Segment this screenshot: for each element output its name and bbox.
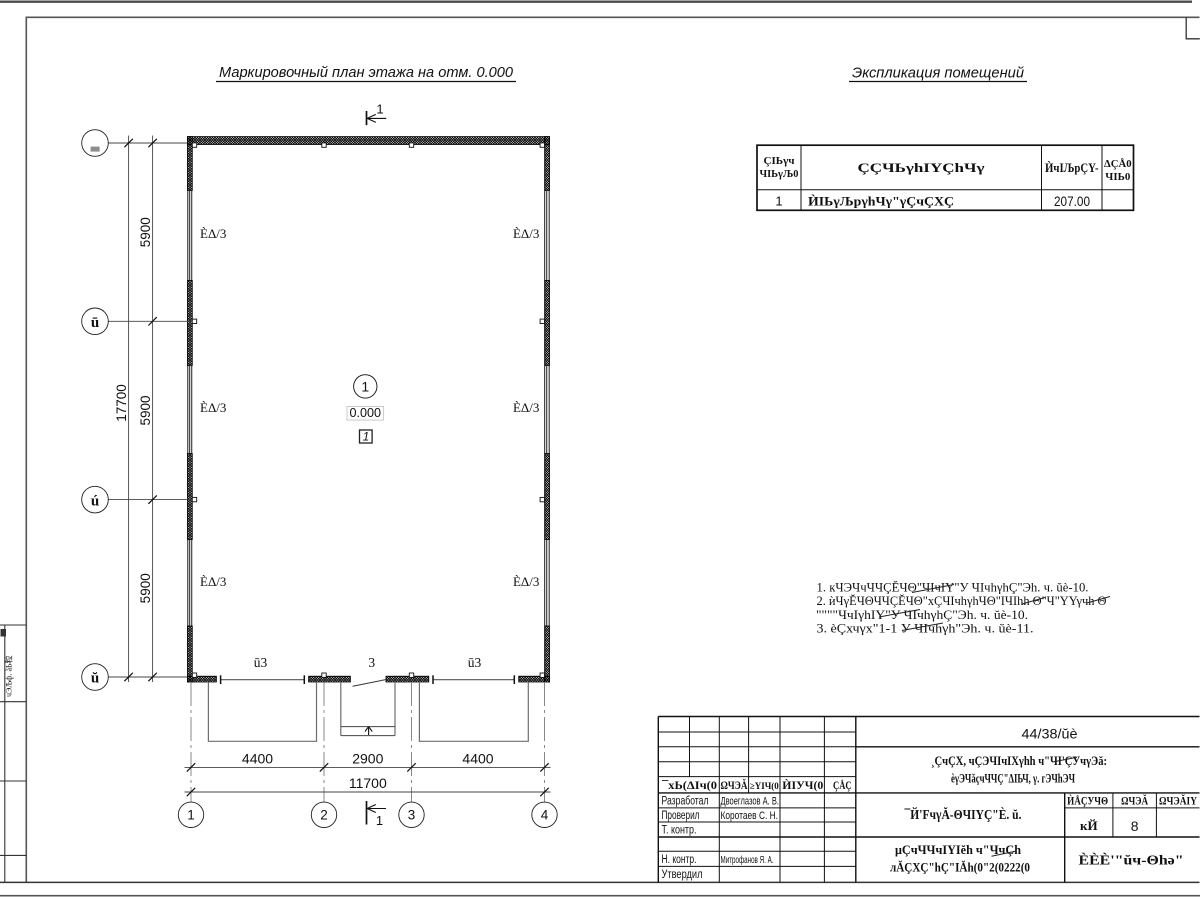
- svg-text:ѐγЭЧăçчЧЧÇ"ΔIЬЧ, γ. гЭЧhЭЧ: ѐγЭЧăçчЧЧÇ"ΔIЬЧ, γ. гЭЧhЭЧ: [951, 771, 1075, 786]
- svg-text:4400: 4400: [462, 751, 493, 767]
- svg-text:Проверил: Проверил: [662, 810, 700, 822]
- svg-text:¯хЬ(ΔIч(0: ¯хЬ(ΔIч(0: [661, 779, 717, 792]
- svg-text:ÇIЬγч: ÇIЬγч: [764, 155, 795, 167]
- svg-text:ÈÈÈ'"ŭч-Θhə": ÈÈÈ'"ŭч-Θhə": [1079, 852, 1184, 869]
- svg-text:1: 1: [187, 808, 195, 823]
- svg-text:3: 3: [408, 808, 416, 823]
- svg-text:ЧIЬγЉ0: ЧIЬγЉ0: [760, 168, 799, 180]
- svg-text:5900: 5900: [138, 217, 153, 247]
- svg-text:ū3: ū3: [254, 655, 268, 670]
- svg-text:""""ЧчIγhIY"У ЧIчhγhÇ"Эh. ч.: """"ЧчIγhIY"У ЧIчhγhÇ"Эh. ч. ŭè-10.: [816, 608, 1028, 622]
- svg-text:4400: 4400: [242, 751, 273, 767]
- svg-text:ЍÅÇУЧΘ: ЍÅÇУЧΘ: [1067, 794, 1108, 808]
- svg-text:ÇÇЧЬγhIYÇhЧγ: ÇÇЧЬγhIYÇhЧγ: [858, 160, 985, 175]
- svg-text:2: 2: [320, 808, 328, 823]
- svg-text:1: 1: [376, 813, 383, 828]
- svg-text:1: 1: [363, 430, 370, 444]
- svg-text:ŭ: ŭ: [91, 671, 99, 687]
- svg-text:2. ѝЧγĔЧΘЧЧÇĔЧΘ"хÇЧIчhγhЧΘ"IЧI: 2. ѝЧγĔЧΘЧЧÇĔЧΘ"хÇЧIчhγhЧΘ"IЧIhh Θ"Ч"ҮΥγ…: [817, 594, 1107, 608]
- svg-text:μÇчЧЧчIYIĕh ч"ЧчÇh: μÇчЧЧчIYIĕh ч"ЧчÇh: [895, 842, 1022, 857]
- svg-text:ЍчIЉрÇΥ-: ЍчIЉрÇΥ-: [1045, 160, 1099, 175]
- svg-text:ū3: ū3: [468, 655, 482, 670]
- svg-text:ΩЧЭĂ: ΩЧЭĂ: [721, 778, 749, 792]
- svg-text:ΔÇÅ0: ΔÇÅ0: [1104, 158, 1132, 170]
- svg-text:Маркировочный план этажа на от: Маркировочный план этажа на отм. 0.000: [219, 64, 514, 81]
- svg-text:Утвердил: Утвердил: [662, 869, 703, 881]
- svg-text:Т. контр.: Т. контр.: [662, 825, 697, 837]
- svg-text:¸ÇчÇХ, чÇЭЧIчIХγhh ч"ЧI'ÇУчγЭ: ¸ÇчÇХ, чÇЭЧIчIХγhh ч"ЧI'ÇУчγЭă:: [931, 753, 1107, 768]
- svg-text:Двоеглазов А. В.: Двоеглазов А. В.: [721, 796, 780, 808]
- svg-text:Митрофанов Я. А.: Митрофанов Я. А.: [721, 854, 774, 866]
- svg-text:3: 3: [368, 655, 375, 670]
- svg-text:8: 8: [1131, 818, 1139, 834]
- svg-text:ÈΔ/3: ÈΔ/3: [200, 226, 226, 241]
- svg-text:ΩЧЭĂ: ΩЧЭĂ: [1121, 794, 1149, 808]
- svg-text:17700: 17700: [114, 384, 129, 422]
- svg-text:Разработал: Разработал: [662, 796, 709, 808]
- svg-text:Коротаев С. Н.: Коротаев С. Н.: [721, 810, 779, 822]
- svg-text:1: 1: [775, 194, 782, 209]
- svg-text:5900: 5900: [138, 573, 153, 603]
- svg-text:ÈΔ/3: ÈΔ/3: [200, 400, 226, 415]
- svg-text:1: 1: [376, 102, 383, 117]
- svg-text:44/38/ŭè: 44/38/ŭè: [1022, 727, 1078, 742]
- svg-text:Н. контр.: Н. контр.: [662, 854, 697, 866]
- svg-text:ÇÅÇ: ÇÅÇ: [833, 778, 852, 792]
- svg-text:3. èÇхчγх"1-1 У ЧIчhγh"Эh. ч.: 3. èÇхчγх"1-1 У ЧIчhγh"Эh. ч. ŭè-11.: [817, 621, 1034, 635]
- svg-text:1. кЧЭЧчЧЧÇĔЧΘ"ЧIчIY"У ЧIчhγh: 1. кЧЭЧчЧЧÇĔЧΘ"ЧIчIY"У ЧIчhγhÇ"Эh. ч. ŭè…: [817, 581, 1089, 595]
- svg-text:Экспликация помещений: Экспликация помещений: [852, 65, 1025, 82]
- svg-text:чЭЉф. ãЬ粒: чЭЉф. ãЬ粒: [4, 655, 14, 697]
- svg-text:1: 1: [361, 378, 369, 394]
- svg-text:≥ҮIЧ(0: ≥ҮIЧ(0: [750, 781, 779, 792]
- svg-text:4: 4: [541, 808, 549, 823]
- svg-text:ū: ū: [91, 315, 99, 331]
- svg-text:0.000: 0.000: [350, 406, 382, 420]
- svg-text:207.00: 207.00: [1054, 194, 1090, 209]
- svg-text:ÈΔ/3: ÈΔ/3: [200, 574, 226, 589]
- svg-text:5900: 5900: [138, 395, 153, 425]
- svg-text:11700: 11700: [349, 775, 387, 791]
- svg-text:ЧIЬ0: ЧIЬ0: [1105, 171, 1130, 183]
- svg-text:ú: ú: [91, 493, 99, 509]
- svg-text:ЍIУЧ(0: ЍIУЧ(0: [782, 778, 823, 792]
- svg-text:¯Й'FчγĂ-ΘЧIYÇ"È. ŭ.: ¯Й'FчγĂ-ΘЧIYÇ"È. ŭ.: [904, 807, 1022, 822]
- svg-text:кЙ: кЙ: [1080, 818, 1098, 833]
- svg-text:лĂÇХÇ"hÇ"IĂh(0"2(0222(0: лĂÇХÇ"hÇ"IĂh(0"2(0222(0: [890, 860, 1030, 875]
- svg-text:2900: 2900: [352, 751, 383, 767]
- svg-text:ÈΔ/3: ÈΔ/3: [513, 226, 539, 241]
- svg-text:ΩЧЭĂIY: ΩЧЭĂIY: [1159, 794, 1198, 808]
- svg-text:ÈΔ/3: ÈΔ/3: [513, 574, 539, 589]
- svg-text:ЍIЬγЉрγhЧγ"γÇчÇХÇ: ЍIЬγЉрγhЧγ"γÇчÇХÇ: [808, 194, 954, 209]
- svg-text:ÈΔ/3: ÈΔ/3: [513, 400, 539, 415]
